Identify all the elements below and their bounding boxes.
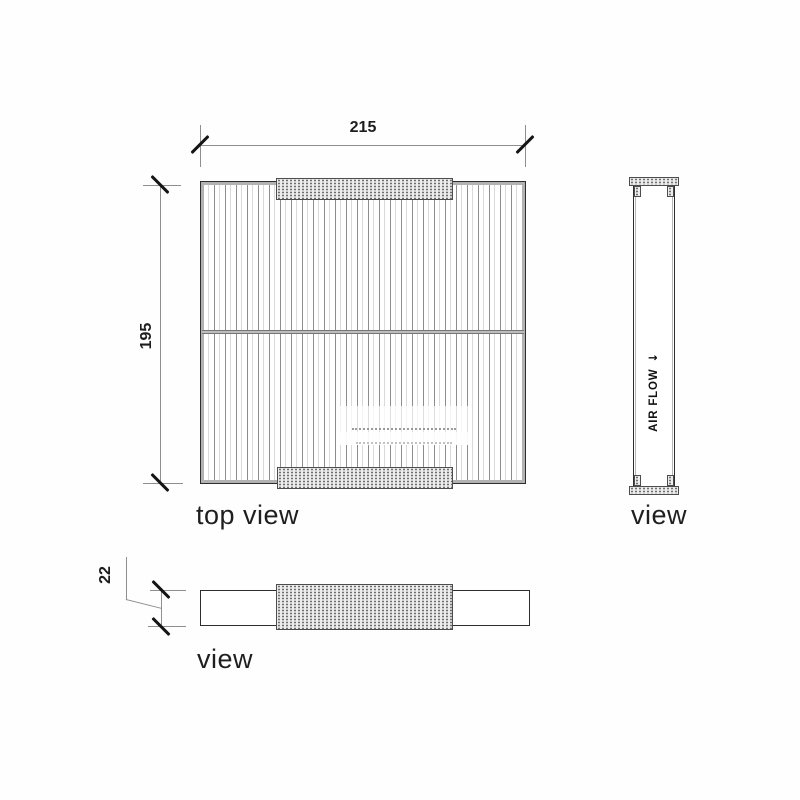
side-tab-cap-bottom: [629, 486, 679, 495]
adhesive-tab-top: [276, 178, 453, 200]
thickness-leader-line: [126, 599, 162, 609]
height-dimension-line: [160, 185, 161, 483]
width-dimension-value: 215: [338, 119, 388, 137]
side-tab-stub: [667, 475, 674, 486]
side-tab-stub: [634, 475, 641, 486]
technical-drawing: 215 195 top view AIR FLOW↓ view 22: [0, 0, 800, 800]
side-tab-stub: [634, 186, 641, 197]
air-flow-text: AIR FLOW: [648, 369, 660, 432]
height-dimension-value: 195: [138, 314, 156, 358]
side-tab-cap-top: [629, 177, 679, 186]
watermark-dots: [356, 442, 452, 444]
thickness-leader-line: [126, 557, 127, 600]
adhesive-tab-bottom: [277, 467, 453, 489]
watermark-dots: [352, 428, 456, 430]
front-view-label: view: [197, 644, 253, 675]
front-adhesive-tab: [276, 584, 453, 630]
thickness-dimension-value: 22: [97, 557, 115, 593]
side-view-label: view: [631, 500, 687, 531]
thickness-extension-line: [148, 626, 186, 627]
width-dimension-line: [200, 145, 526, 146]
top-view-label: top view: [196, 500, 299, 531]
thickness-extension-line: [150, 590, 186, 591]
air-flow-label: AIR FLOW↓: [646, 342, 662, 442]
filter-center-rib: [202, 330, 524, 334]
side-view-outline: [633, 182, 675, 490]
side-view-inner-line: [635, 184, 673, 488]
air-flow-arrow-icon: ↓: [646, 352, 660, 362]
side-tab-stub: [667, 186, 674, 197]
